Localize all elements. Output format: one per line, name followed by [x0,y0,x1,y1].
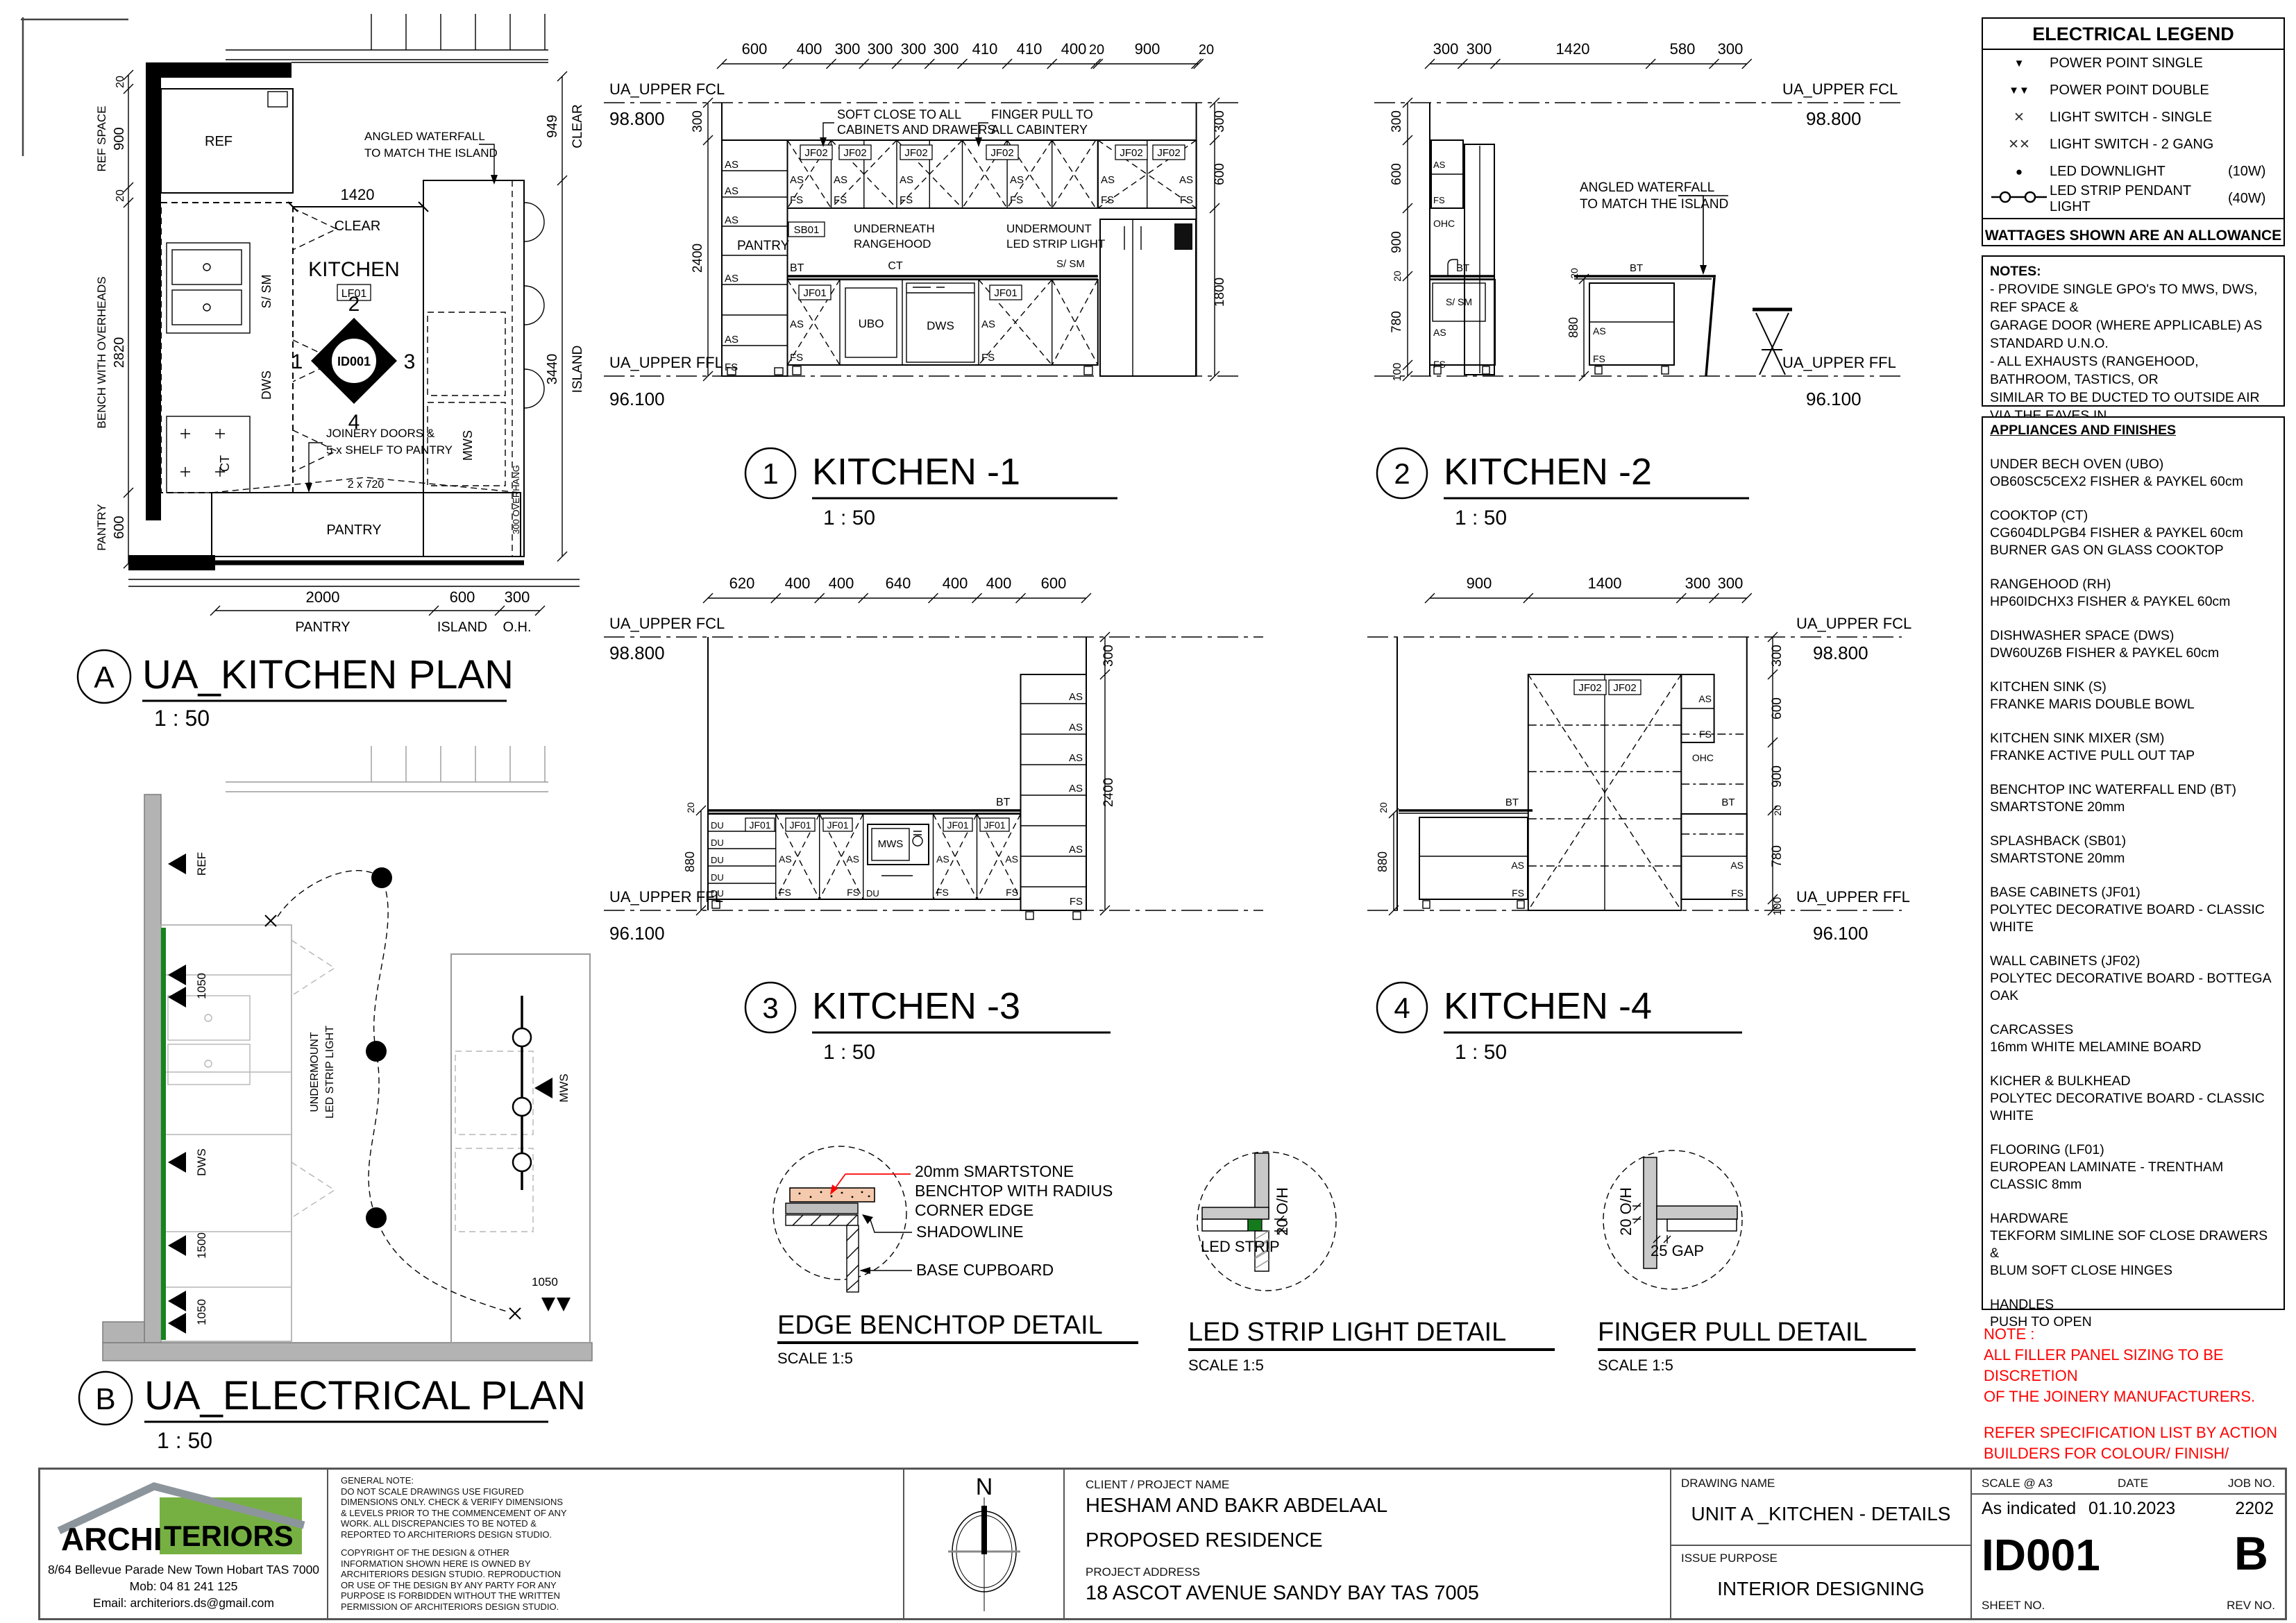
k2-cabinets: AS FS OHC BT S/ SM AS FS [1430,103,1495,376]
dim-label: 300 [1467,40,1492,58]
legend-watt: (40W) [2228,191,2278,207]
led-strip-pendant-icon [1989,190,2050,207]
legend-row: ✕✕ LIGHT SWITCH - 2 GANG [1983,131,2284,158]
dim-label: 300 [1213,110,1227,133]
job-label: JOB NO. [2228,1477,2275,1490]
cab-label: FS [936,887,949,898]
red-note-line: REFER SPECIFICATION LIST BY ACTION [1984,1422,2287,1443]
undermount-label2: LED STRIP LIGHT [324,1026,336,1119]
k1-dims-top: 600 400 300 300 300 300 410 410 400 20 9… [717,40,1214,69]
red-note-line [1984,1407,2287,1422]
general-note-line: & LEVELS PRIOR TO THE COMMENCEMENT OF AN… [341,1508,632,1519]
level-label: UA_UPPER FCL [1782,80,1898,98]
dim-label: 600 [742,40,768,58]
project-address: 18 ASCOT AVENUE SANDY BAY TAS 7005 [1086,1582,1479,1605]
level-label: UA_UPPER FFL [609,888,723,906]
benchtop-note: 20mm SMARTSTONE [915,1162,1074,1180]
pantry-dim: PANTRY [295,620,350,635]
copyright-note-line: COPYRIGHT OF THE DESIGN & OTHER [341,1547,632,1558]
cab-label: FS [1433,359,1446,370]
finish-tag: JF01 [994,287,1017,299]
phone-line: Mob: 04 81 241 125 [40,1578,327,1595]
dim-label: 620 [729,575,755,592]
dim-label: 600 [1213,163,1227,185]
cab-label: FS [900,194,913,206]
scale-label: SCALE @ A3 [1982,1477,2052,1490]
sheet-number: ID001 [1982,1529,2100,1581]
finish-tag: JF02 [1578,682,1601,694]
dim-label: 20 [1199,42,1214,58]
cab-label: FS [790,194,803,206]
dim-label: 2000 [306,588,340,606]
elev-title: KITCHEN -2 [1444,451,1652,493]
detail-title: EDGE BENCHTOP DETAIL [777,1311,1103,1340]
appliance-item: UNDER BECH OVEN (UBO)OB60SC5CEX2 FISHER … [1990,456,2277,491]
dim-label: 20 [1569,268,1580,279]
legend-label: POWER POINT DOUBLE [2050,83,2228,99]
k2-dims-top: 300 300 1420 580 300 [1425,40,1752,69]
detail-title: LED STRIP LIGHT DETAIL [1188,1318,1506,1347]
finish-tag: JF02 [1613,682,1636,694]
gpo-height-label: 1050 [195,973,208,999]
appliances-panel: APPLIANCES AND FINISHES UNDER BECH OVEN … [1982,416,2285,1310]
elev-num-4: 4 [348,411,360,434]
dim-label: 100 [1392,363,1403,382]
plan-title-text: UA_KITCHEN PLAN [142,652,514,697]
legend-label: LIGHT SWITCH - SINGLE [2050,110,2228,126]
level-value: 96.100 [609,389,665,409]
company-cell: ARCHI TERIORS 8/64 Bellevue Parade New T… [40,1470,328,1618]
logo-text-archi: ARCHI [61,1521,162,1557]
architeriors-logo: ARCHI TERIORS [56,1477,312,1558]
k3-cabinets: AS AS AS AS AS FS BT DU DU DU DU DU JF01… [683,632,1116,919]
elev-ref: 3 [762,992,778,1024]
plan-dims-bottom: 2000 PANTRY 600 ISLAND 300 O.H. [210,588,545,635]
ref-space-label: REF SPACE [95,105,108,171]
cab-label: AS [900,174,913,186]
rev-number: B [2234,1527,2268,1581]
legend-row: ✕ LIGHT SWITCH - SINGLE [1983,104,2284,131]
dim-label: 580 [1670,40,1696,58]
legend-title: ELECTRICAL LEGEND [1983,19,2284,50]
note-line: GARAGE DOOR (WHERE APPLICABLE) AS STANDA… [1990,316,2277,352]
dim-label: 1800 [1213,278,1227,307]
legend-row: ● LED DOWNLIGHT (10W) [1983,158,2284,185]
undermount-label: UNDERMOUNT [309,1032,321,1112]
eplan-structure [103,746,592,1361]
dim-label: 949 [545,114,560,137]
plan-dims-right: 949 CLEAR 3440 ISLAND [545,71,585,561]
cab-label: AS [1069,752,1083,764]
drawing-sheet: REF S/ SM DWS CT PANTRY 2 x 720 JOINERY … [0,0,2296,1623]
notes-title: NOTES: [1990,262,2277,280]
cab-label: AS [846,853,859,865]
cab-label: AS [725,185,738,197]
power-point-double-icon: ▼▼ [1989,85,2050,96]
drawing-name-label: DRAWING NAME [1681,1477,1775,1490]
sink-label: S/ SM [1446,296,1472,307]
bench-oh-label: BENCH WITH OVERHEADS [95,276,108,428]
k3-dims-top: 620 400 400 640 400 400 600 [703,575,1091,603]
dim-label: 20 [115,76,126,88]
level-value: 96.100 [1813,923,1868,944]
plan-deck [226,14,548,62]
cab-label: AS [1005,853,1018,865]
benchtop-note3: CORNER EDGE [915,1201,1033,1219]
level-value: 98.800 [609,643,665,663]
elev-num-2: 2 [348,293,360,316]
k2-title: 2 KITCHEN -2 1 : 50 [1377,448,1749,529]
bt-label: BT [996,797,1011,808]
ledstrip-note: UNDERMOUNT [1006,222,1092,235]
plan-elevation-marker: ID001 2 1 3 4 [292,293,416,434]
cab-label: DU [711,855,724,865]
dim-label: 20 [1089,42,1104,58]
appliance-item: BENCHTOP INC WATERFALL END (BT)SMARTSTON… [1990,781,2277,816]
plan-title-text: UA_ELECTRICAL PLAN [144,1373,586,1418]
cab-label: FS [981,352,995,364]
legend-label: POWER POINT SINGLE [2050,56,2228,71]
finger-pull-note2: ALL CABINTERY [991,123,1088,137]
dim-label: 410 [1017,40,1043,58]
kitchen-label: KITCHEN [308,258,400,281]
plan-annotations: ANGLED WATERFALL TO MATCH THE ISLAND 142… [288,130,498,300]
appliance-item: WALL CABINETS (JF02)POLYTEC DECORATIVE B… [1990,953,2277,1005]
plan-scale: 1 : 50 [157,1428,212,1453]
finger-pull-detail: 20 O/H 25 GAP FINGER PULL DETAIL SCALE 1… [1589,1138,1978,1374]
soft-close-note2: CABINETS AND DRAWERS [837,123,995,137]
elev-title: KITCHEN -4 [1444,985,1652,1027]
cab-label: AS [981,318,995,330]
kitchen4-elevation: UA_UPPER FCL 98.800 UA_UPPER FFL 96.100 … [1353,555,1916,1069]
legend-row: LED STRIP PENDANT LIGHT (40W) [1983,185,2284,212]
north-arrow-cell: N [904,1470,1065,1618]
elev-scale: 1 : 50 [1455,507,1507,529]
cab-label: AS [1698,693,1712,704]
dim-label: 300 [1390,110,1404,133]
led-strip-label: LED STRIP [1201,1238,1280,1255]
dim-label: 300 [868,40,893,58]
k2-dims-side: 300 600 900 20 780 100 [1390,98,1412,381]
north-arrow: N [943,1475,1026,1614]
cab-label: FS [1101,194,1114,206]
bt-label: BT [1630,262,1643,274]
dim-label: 900 [1467,575,1492,592]
dishwasher-label: DWS [927,319,954,332]
plan-ref: B [95,1382,115,1416]
dws-label: DWS [260,371,273,400]
gpo-height-label: 1050 [532,1275,558,1289]
detail-title: FINGER PULL DETAIL [1598,1318,1868,1347]
cab-label: FS [847,887,859,898]
k4-dims-top: 900 1400 300 300 [1425,575,1752,603]
sheet-label: SHEET NO. [1982,1599,2045,1613]
dim-label: 640 [886,575,911,592]
dim-label: 20 [1378,802,1389,813]
k1-title: 1 KITCHEN -1 1 : 50 [745,448,1117,529]
cab-label: FS [1512,887,1524,899]
issue-purpose-cell: ISSUE PURPOSE INTERIOR DESIGNING [1671,1546,1970,1618]
light-switch-single-icon: ✕ [1989,110,2050,126]
cab-label: AS [1511,860,1524,871]
dim-label: 600 [450,588,475,606]
cab-label: AS [790,174,804,186]
kitchen2-elevation: UA_UPPER FCL 98.800 UA_UPPER FFL 96.100 … [1353,21,1916,534]
ref-gpo-label: REF [195,852,208,876]
pantry-dim-label: PANTRY [95,504,108,550]
cab-label: AS [790,318,804,330]
plan-dims-left: 20 900 REF SPACE 20 2820 BENCH WITH OVER… [95,70,133,568]
soft-close-note: SOFT CLOSE TO ALL [837,108,961,121]
cab-label: FS [779,887,791,898]
finish-tag: JF01 [749,819,770,831]
cab-label: DU [711,820,724,831]
cab-label: DU [866,888,879,899]
red-note-line: ALL FILLER PANEL SIZING TO BE DISCRETION [1984,1345,2287,1386]
appliances-list: UNDER BECH OVEN (UBO)OB60SC5CEX2 FISHER … [1990,456,2277,1331]
dim-label: 300 [505,588,530,606]
cab-label: OHC [1692,752,1714,763]
elev-scale: 1 : 50 [1455,1041,1507,1064]
dim-label: 2400 [1101,778,1116,807]
client-name: HESHAM AND BAKR ABDELAAL [1086,1495,1387,1518]
level-label: UA_UPPER FFL [609,354,723,371]
k4-cabinets: JF02 JF02 AS FS OHC AS FS BT BT AS FS 20… [1376,632,1784,915]
bt-label: BT [790,262,804,274]
plan-fridge: REF [161,89,293,193]
dim-label: 300 [1101,645,1116,667]
dim-label: 900 [1770,765,1784,788]
joinery-note: JOINERY DOORS & [326,427,435,440]
appliance-item: KITCHEN SINK (S)FRANKE MARIS DOUBLE BOWL [1990,679,2277,713]
shadowline-label: SHADOWLINE [916,1223,1024,1241]
dim-label: 300 [1433,40,1459,58]
bt-label: BT [1721,797,1734,808]
gpo-height-label: 1050 [195,1299,208,1325]
sink-label: S/ SM [260,274,273,308]
kitchen-plan-drawing: REF S/ SM DWS CT PANTRY 2 x 720 JOINERY … [62,14,611,729]
dim-label: 600 [1041,575,1067,592]
finish-tag: JF01 [827,819,848,831]
general-note-line: DO NOT SCALE DRAWINGS USE FIGURED [341,1486,632,1497]
general-note-line: WORK. ALL DISCREPANCIES TO BE NOTED & [341,1518,632,1529]
appliance-item: CARCASSES16mm WHITE MELAMINE BOARD [1990,1021,2277,1056]
pantry-label: PANTRY [737,239,790,253]
general-note-2: COPYRIGHT OF THE DESIGN & OTHERINFORMATI… [341,1547,632,1612]
base-cupboard-label: BASE CUPBOARD [916,1261,1054,1279]
rev-label: REV NO. [2227,1599,2275,1613]
copyright-note-line: OR USE OF THE DESIGN BY ANY PARTY FOR AN… [341,1580,632,1591]
finish-tag: JF02 [1157,147,1180,159]
drawing-cell: DRAWING NAME UNIT A _KITCHEN - DETAILS I… [1671,1470,1972,1618]
detail-scale: SCALE 1:5 [1598,1357,1673,1374]
cab-label: AS [1010,174,1024,186]
ref-label: REF [205,134,233,149]
dim-label: 900 [112,127,127,150]
legend-row: ▼▼ POWER POINT DOUBLE [1983,77,2284,104]
level-label: UA_UPPER FCL [609,615,725,632]
legend-label: LIGHT SWITCH - 2 GANG [2050,137,2228,153]
red-note: NOTE :ALL FILLER PANEL SIZING TO BE DISC… [1984,1324,2287,1485]
issue-purpose: INTERIOR DESIGNING [1671,1578,1970,1600]
dim-label: 400 [1061,40,1087,58]
dim-label: 100 [1772,897,1784,916]
appliance-item: BASE CABINETS (JF01)POLYTEC DECORATIVE B… [1990,884,2277,936]
k1-cabinets: AS AS AS AS AS PANTRY FS JF02 JF02 JF02 … [722,103,1197,376]
dim-label: 1420 [341,186,375,203]
dim-label: 20 [1392,271,1403,282]
clear-dim-label: CLEAR [571,104,585,148]
date-label: DATE [2118,1477,2148,1490]
dim-label: 2820 [112,337,127,368]
finger-pull-note: FINGER PULL TO [991,108,1093,121]
dim-label: 600 [1390,163,1404,185]
general-note-1: GENERAL NOTE:DO NOT SCALE DRAWINGS USE F… [341,1475,632,1540]
oh-dim: O.H. [503,620,531,635]
finish-tag: JF02 [990,147,1013,159]
cab-label: FS [1731,887,1744,899]
angled-note2: TO MATCH THE ISLAND [364,146,498,160]
cab-label: AS [725,159,738,171]
email-line: Email: architeriors.ds@gmail.com [40,1595,327,1611]
level-value: 98.800 [1806,108,1862,129]
job-value: 2202 [2235,1499,2274,1519]
dim-label: 20 [115,189,126,202]
elev-scale: 1 : 50 [823,507,875,529]
cab-label: AS [1179,174,1193,186]
power-point-single-icon: ▼ [1989,58,2050,69]
general-note-line: REPORTED TO ARCHITERIORS DESIGN STUDIO. [341,1529,632,1540]
copyright-note-line: PERMISSION OF ARCHITERIORS DESIGN STUDIO… [341,1601,632,1613]
client-cell: CLIENT / PROJECT NAME HESHAM AND BAKR AB… [1065,1470,1671,1618]
finish-tag: JF01 [947,819,968,831]
issue-purpose-label: ISSUE PURPOSE [1681,1552,1778,1565]
k4-title: 4 KITCHEN -4 1 : 50 [1377,983,1742,1064]
electrical-plan-drawing: REF 1050 DWS 1500 1050 MWS 1050 [62,746,611,1454]
finish-tag: JF01 [789,819,811,831]
dws-gpo-label: DWS [195,1148,208,1176]
appliance-item: HARDWARETEKFORM SIMLINE SOF CLOSE DRAWER… [1990,1210,2277,1280]
note-line: - PROVIDE SINGLE GPO's TO MWS, DWS, REF … [1990,280,2277,316]
cab-label: AS [725,273,738,284]
appliance-item: KITCHEN SINK MIXER (SM)FRANKE ACTIVE PUL… [1990,730,2277,765]
dim-label: 400 [986,575,1012,592]
cab-label: FS [1010,194,1023,206]
copyright-note-line: ARCHITERIORS DESIGN STUDIO. REPRODUCTION [341,1569,632,1580]
cab-label: FS [1180,194,1193,206]
legend-label: LED STRIP PENDANT LIGHT [2050,183,2228,215]
cab-label: AS [1069,691,1083,703]
dim-label: 300 [1685,575,1711,592]
elev-ref: 2 [1394,457,1410,490]
overhang-label: 20 O/H [1617,1187,1635,1236]
dim-label: 1400 [1588,575,1622,592]
appliance-item: FLOORING (LF01)EUROPEAN LAMINATE - TRENT… [1990,1141,2277,1193]
dim-label: 300 [691,110,705,133]
drawing-name: UNIT A _KITCHEN - DETAILS [1671,1503,1970,1525]
cab-label: AS [1433,160,1446,170]
joinery-note2: 5 x SHELF TO PANTRY [326,443,453,457]
gap-label: 25 GAP [1651,1242,1704,1259]
pantry-label: PANTRY [326,522,381,538]
address-line: 8/64 Bellevue Parade New Town Hobart TAS… [40,1561,327,1578]
dim-label: 300 [1718,575,1744,592]
island-dim-label: ISLAND [571,346,585,393]
project-address-label: PROJECT ADDRESS [1086,1565,1200,1579]
marker-id: ID001 [337,355,371,368]
eplan-title: B UA_ELECTRICAL PLAN 1 : 50 [79,1372,586,1453]
cab-label: AS [1433,327,1446,338]
appliance-item: RANGEHOOD (RH)HP60IDCHX3 FISHER & PAYKEL… [1990,576,2277,611]
ledstrip-note2: LED STRIP LIGHT [1006,237,1105,250]
plan-scale: 1 : 50 [154,706,210,731]
legend-footer: WATTAGES SHOWN ARE AN ALLOWANCE [1983,218,2284,248]
level-value: 98.800 [1813,643,1868,663]
cab-label: AS [725,334,738,346]
legend-watt: (10W) [2228,164,2278,180]
light-switch-2gang-icon: ✕✕ [1989,137,2050,153]
island-dim: ISLAND [437,620,487,635]
dim-label: 300 [934,40,959,58]
angled-note2: TO MATCH THE ISLAND [1580,197,1728,212]
detail-scale: SCALE 1:5 [1188,1357,1264,1374]
angled-note: ANGLED WATERFALL [364,130,485,143]
dim-label: 880 [1567,317,1580,338]
elev-num-3: 3 [404,350,416,373]
benchtop-note2: BENCHTOP WITH RADIUS [915,1182,1113,1200]
level-value: 98.800 [609,108,665,129]
logo-text-teriors: TERIORS [164,1520,294,1552]
cab-label: AS [1730,860,1744,871]
cab-label: FS [1070,896,1083,908]
cab-label: AS [725,214,738,226]
level-value: 96.100 [1806,389,1862,409]
level-label: UA_UPPER FFL [1796,888,1910,906]
legend-label: LED DOWNLIGHT [2050,164,2228,180]
plan-ref: A [94,661,115,695]
bt-label: BT [1505,797,1519,808]
overhang-label: 20 O/H [1274,1187,1291,1236]
cab-label: FS [834,194,847,206]
level-label: UA_UPPER FCL [609,80,725,98]
plan-island: 300 OVERHANG MWS [423,180,544,556]
cab-label: AS [1069,783,1083,794]
note-line: - ALL EXHAUSTS (RANGEHOOD, BATHROOM, TAS… [1990,352,2277,389]
dim-label: 300 [1770,645,1784,667]
dim-label: 2400 [691,244,705,273]
led-downlight-icon: ● [1989,165,2050,179]
rangehood-note2: RANGEHOOD [854,237,931,250]
led-strip-detail: LED STRIP 20 O/H LED STRIP LIGHT DETAIL … [1180,1138,1569,1374]
k3-title: 3 KITCHEN -3 1 : 50 [745,983,1111,1064]
cab-label: AS [936,853,949,865]
elev-num-1: 1 [292,350,303,373]
dim-label: 3440 [545,354,560,385]
north-label: N [976,1474,993,1500]
elev-title: KITCHEN -1 [812,451,1020,493]
elev-ref: 1 [762,457,778,490]
red-note-line: OF THE JOINERY MANUFACTURERS. [1984,1386,2287,1407]
cab-label: AS [834,174,847,186]
ct-label: CT [218,455,232,472]
k2-island: BT AS FS 20 880 ANGLED WATERFALL TO MATC… [1567,180,1792,381]
angled-note: ANGLED WATERFALL [1580,180,1714,195]
general-note-line: DIMENSIONS ONLY. CHECK & VERIFY DIMENSIO… [341,1497,632,1508]
cab-label: AS [779,853,792,865]
appliance-item: DISHWASHER SPACE (DWS)DW60UZ6B FISHER & … [1990,627,2277,662]
title-block: ARCHI TERIORS 8/64 Bellevue Parade New T… [38,1468,2287,1620]
gpo-height-label: 1500 [195,1232,208,1259]
